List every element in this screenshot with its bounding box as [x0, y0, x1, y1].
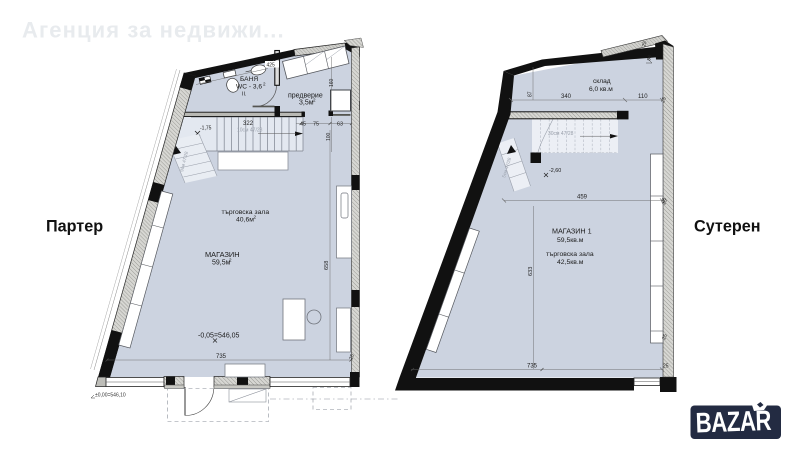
svg-text:100: 100	[326, 132, 332, 141]
svg-text:30см 47/28: 30см 47/28	[548, 131, 574, 137]
svg-text:735: 735	[216, 354, 227, 360]
svg-text:75: 75	[313, 122, 319, 128]
svg-text:3,5м: 3,5м	[299, 100, 314, 107]
svg-text:Агенция за недвижи...: Агенция за недвижи...	[22, 18, 285, 43]
svg-text:МАГАЗИН: МАГАЗИН	[205, 250, 240, 259]
svg-text:160: 160	[329, 78, 335, 87]
svg-text:предверие: предверие	[288, 93, 323, 100]
svg-text:2: 2	[229, 258, 232, 263]
svg-text:2: 2	[313, 98, 316, 103]
svg-text:340: 340	[561, 94, 572, 100]
svg-text:търговска зала: търговска зала	[546, 251, 594, 258]
svg-text:25: 25	[663, 364, 669, 370]
svg-text:425: 425	[267, 63, 276, 69]
svg-text:II.: II.	[242, 92, 247, 98]
svg-text:2: 2	[254, 215, 257, 220]
svg-text:Партер: Партер	[46, 218, 103, 236]
svg-text:6,0 кв.м: 6,0 кв.м	[589, 86, 613, 93]
svg-text:658: 658	[324, 261, 330, 270]
svg-text:322: 322	[243, 121, 254, 127]
svg-text:±0,00=546,10: ±0,00=546,10	[95, 393, 126, 399]
svg-text:63: 63	[337, 122, 343, 128]
svg-text:-1,75: -1,75	[200, 126, 212, 132]
svg-text:Сутерен: Сутерен	[694, 218, 761, 236]
svg-text:42,5кв.м: 42,5кв.м	[557, 259, 584, 266]
svg-text:МАГАЗИН 1: МАГАЗИН 1	[552, 227, 592, 236]
svg-text:BAZAR: BAZAR	[695, 405, 772, 439]
svg-text:склад: склад	[593, 78, 611, 85]
svg-text:WC - 3,6: WC - 3,6	[236, 84, 262, 91]
svg-text:БАНЯ: БАНЯ	[240, 76, 258, 83]
svg-text:40,6м: 40,6м	[236, 217, 254, 224]
svg-text:45: 45	[300, 122, 306, 128]
svg-text:59,5кв.м: 59,5кв.м	[557, 237, 584, 244]
svg-text:10см 47/28: 10см 47/28	[237, 128, 263, 134]
svg-text:2: 2	[263, 82, 266, 87]
svg-text:59,5м: 59,5м	[212, 260, 231, 267]
svg-text:633: 633	[528, 267, 534, 276]
svg-text:-2,60: -2,60	[549, 168, 561, 174]
svg-text:-0,05=546,05: -0,05=546,05	[198, 333, 240, 340]
svg-text:459: 459	[577, 195, 588, 201]
svg-text:87: 87	[528, 91, 534, 97]
svg-text:110: 110	[638, 94, 648, 100]
svg-text:търговска зала: търговска зала	[222, 209, 270, 216]
svg-text:735: 735	[527, 364, 538, 370]
